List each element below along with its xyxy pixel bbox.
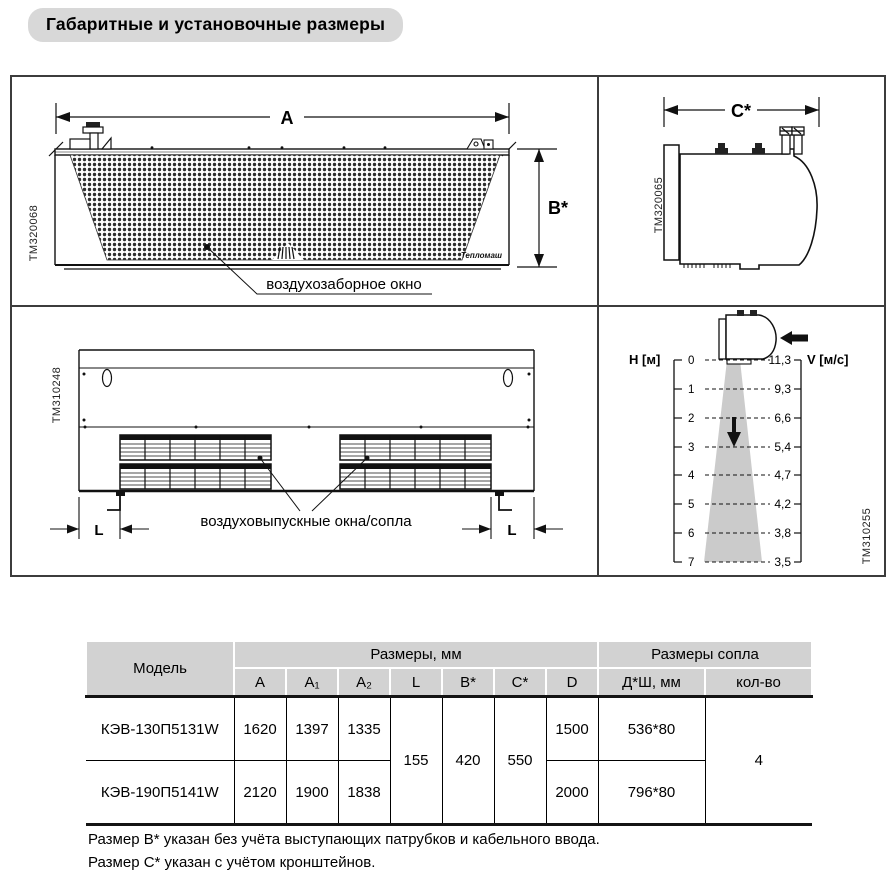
dimensions-table: Модель Размеры, мм Размеры сопла A A₁ A₂…	[85, 640, 813, 826]
svg-text:4,7: 4,7	[774, 468, 791, 482]
svg-text:5: 5	[688, 499, 694, 511]
airflow-diagram: Н [м] V [м/с] 0 1 2 3 4 5 6 7 11,3 9,3 6…	[599, 307, 884, 575]
svg-text:11,3: 11,3	[769, 353, 792, 367]
dim-l-right-label: L	[507, 522, 516, 539]
v-value-labels: 11,3 9,3 6,6 5,4 4,7 4,2 3,8 3,5	[769, 353, 792, 569]
top-knobs	[715, 143, 765, 154]
col-header-a1: A₁	[286, 668, 338, 697]
svg-text:0: 0	[688, 355, 694, 367]
col-header-l: L	[390, 668, 442, 697]
air-jet-cone	[704, 360, 762, 562]
dim-l-left-label: L	[94, 522, 103, 539]
col-header-model: Модель	[86, 641, 234, 697]
svg-text:4: 4	[688, 470, 695, 482]
svg-text:9,3: 9,3	[774, 382, 791, 396]
col-header-b: B*	[442, 668, 494, 697]
inflow-arrow-icon	[780, 331, 808, 345]
brand-logo: Тепломаш	[461, 251, 502, 260]
svg-text:5,4: 5,4	[774, 440, 791, 454]
page-title: Габаритные и установочные размеры	[28, 8, 403, 42]
table-row: КЭВ-130П5131W 1620 1397 1335 155 420 550…	[86, 697, 812, 761]
mounting-bracket	[664, 145, 679, 260]
svg-text:3: 3	[688, 442, 694, 454]
bottom-view-drawing: воздуховыпускные окна/сопла L L TM310248	[12, 307, 597, 575]
tm-code-front: TM320068	[28, 205, 40, 262]
dim-b-label: B*	[548, 198, 568, 218]
outlet-grilles	[120, 435, 491, 489]
slot-right	[504, 370, 513, 387]
svg-text:3,5: 3,5	[774, 555, 791, 569]
grille-block	[340, 464, 491, 489]
group-header-dimensions: Размеры, мм	[234, 641, 598, 668]
cell-l-merged: 155	[390, 697, 442, 825]
cell-d: 1500	[546, 697, 598, 761]
top-valve-fitting	[70, 122, 111, 149]
svg-text:7: 7	[688, 557, 694, 569]
h-axis	[674, 360, 682, 562]
intake-label: воздухозаборное окно	[266, 276, 421, 293]
outlet-label: воздуховыпускные окна/сопла	[200, 513, 412, 530]
dim-a-label: A	[281, 108, 294, 128]
col-header-c: C*	[494, 668, 546, 697]
dim-c-label: C*	[731, 101, 751, 121]
svg-text:3,8: 3,8	[774, 526, 791, 540]
cell-nozzle-size: 796*80	[598, 761, 705, 825]
svg-text:1: 1	[688, 384, 694, 396]
h-axis-label: Н [м]	[629, 352, 660, 367]
note-b: Размер B* указан без учёта выступающих п…	[88, 828, 600, 851]
group-header-nozzle: Размеры сопла	[598, 641, 812, 668]
col-header-d: D	[546, 668, 598, 697]
svg-text:6,6: 6,6	[774, 411, 791, 425]
cell-b-merged: 420	[442, 697, 494, 825]
tm-code-flow: TM310255	[861, 508, 873, 565]
grille-block	[120, 464, 271, 489]
svg-text:2: 2	[688, 413, 694, 425]
svg-text:6: 6	[688, 528, 694, 540]
col-header-a: A	[234, 668, 286, 697]
drawings-panel: A	[10, 75, 886, 577]
cell-d: 2000	[546, 761, 598, 825]
cell-a1: 1397	[286, 697, 338, 761]
cell-a2: 1838	[338, 761, 390, 825]
flow-unit-silhouette	[719, 310, 776, 364]
cell-qty-merged: 4	[705, 697, 812, 825]
front-view-drawing: A	[12, 77, 597, 305]
cell-nozzle-size: 536*80	[598, 697, 705, 761]
side-view-drawing: C*	[599, 77, 884, 305]
wall-brackets	[107, 491, 512, 510]
note-c: Размер C* указан с учётом кронштейнов.	[88, 851, 600, 874]
cell-a1: 1900	[286, 761, 338, 825]
slot-left	[103, 370, 112, 387]
col-header-qty: кол-во	[705, 668, 812, 697]
grille-block	[120, 435, 271, 460]
cell-a2: 1335	[338, 697, 390, 761]
cell-c-merged: 550	[494, 697, 546, 825]
col-header-nozzle-size: Д*Ш, мм	[598, 668, 705, 697]
unit-side-profile	[664, 127, 817, 269]
top-right-bracket	[467, 139, 493, 149]
grille-block	[340, 435, 491, 460]
v-axis-label: V [м/с]	[807, 352, 848, 367]
cell-a: 2120	[234, 761, 286, 825]
tm-code-bottom: TM310248	[51, 367, 63, 424]
tm-code-side: TM320065	[653, 177, 665, 234]
h-tick-labels: 0 1 2 3 4 5 6 7	[688, 355, 695, 569]
svg-text:4,2: 4,2	[774, 497, 791, 511]
cell-a: 1620	[234, 697, 286, 761]
cell-model: КЭВ-190П5141W	[86, 761, 234, 825]
footnotes: Размер B* указан без учёта выступающих п…	[88, 828, 600, 874]
cell-model: КЭВ-130П5131W	[86, 697, 234, 761]
intake-grille	[70, 155, 500, 260]
v-axis	[794, 360, 801, 562]
col-header-a2: A₂	[338, 668, 390, 697]
